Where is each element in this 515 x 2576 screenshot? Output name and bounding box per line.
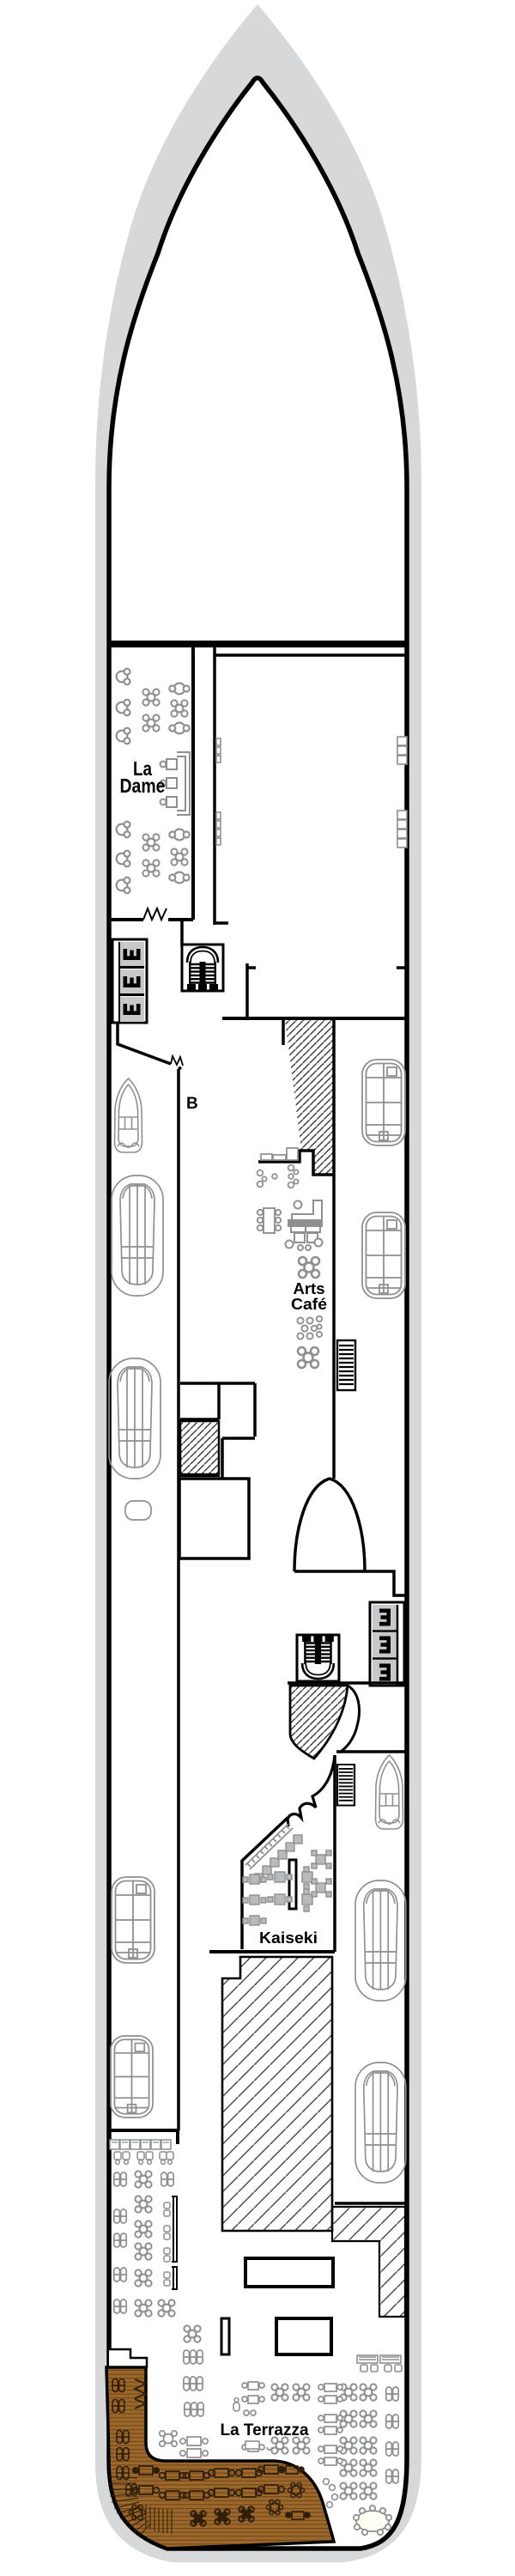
svg-text:B: B (186, 1095, 198, 1113)
svg-text:Dame: Dame (120, 775, 166, 797)
svg-text:Café: Café (291, 1295, 327, 1313)
svg-text:Kaiseki: Kaiseki (259, 1929, 318, 1947)
